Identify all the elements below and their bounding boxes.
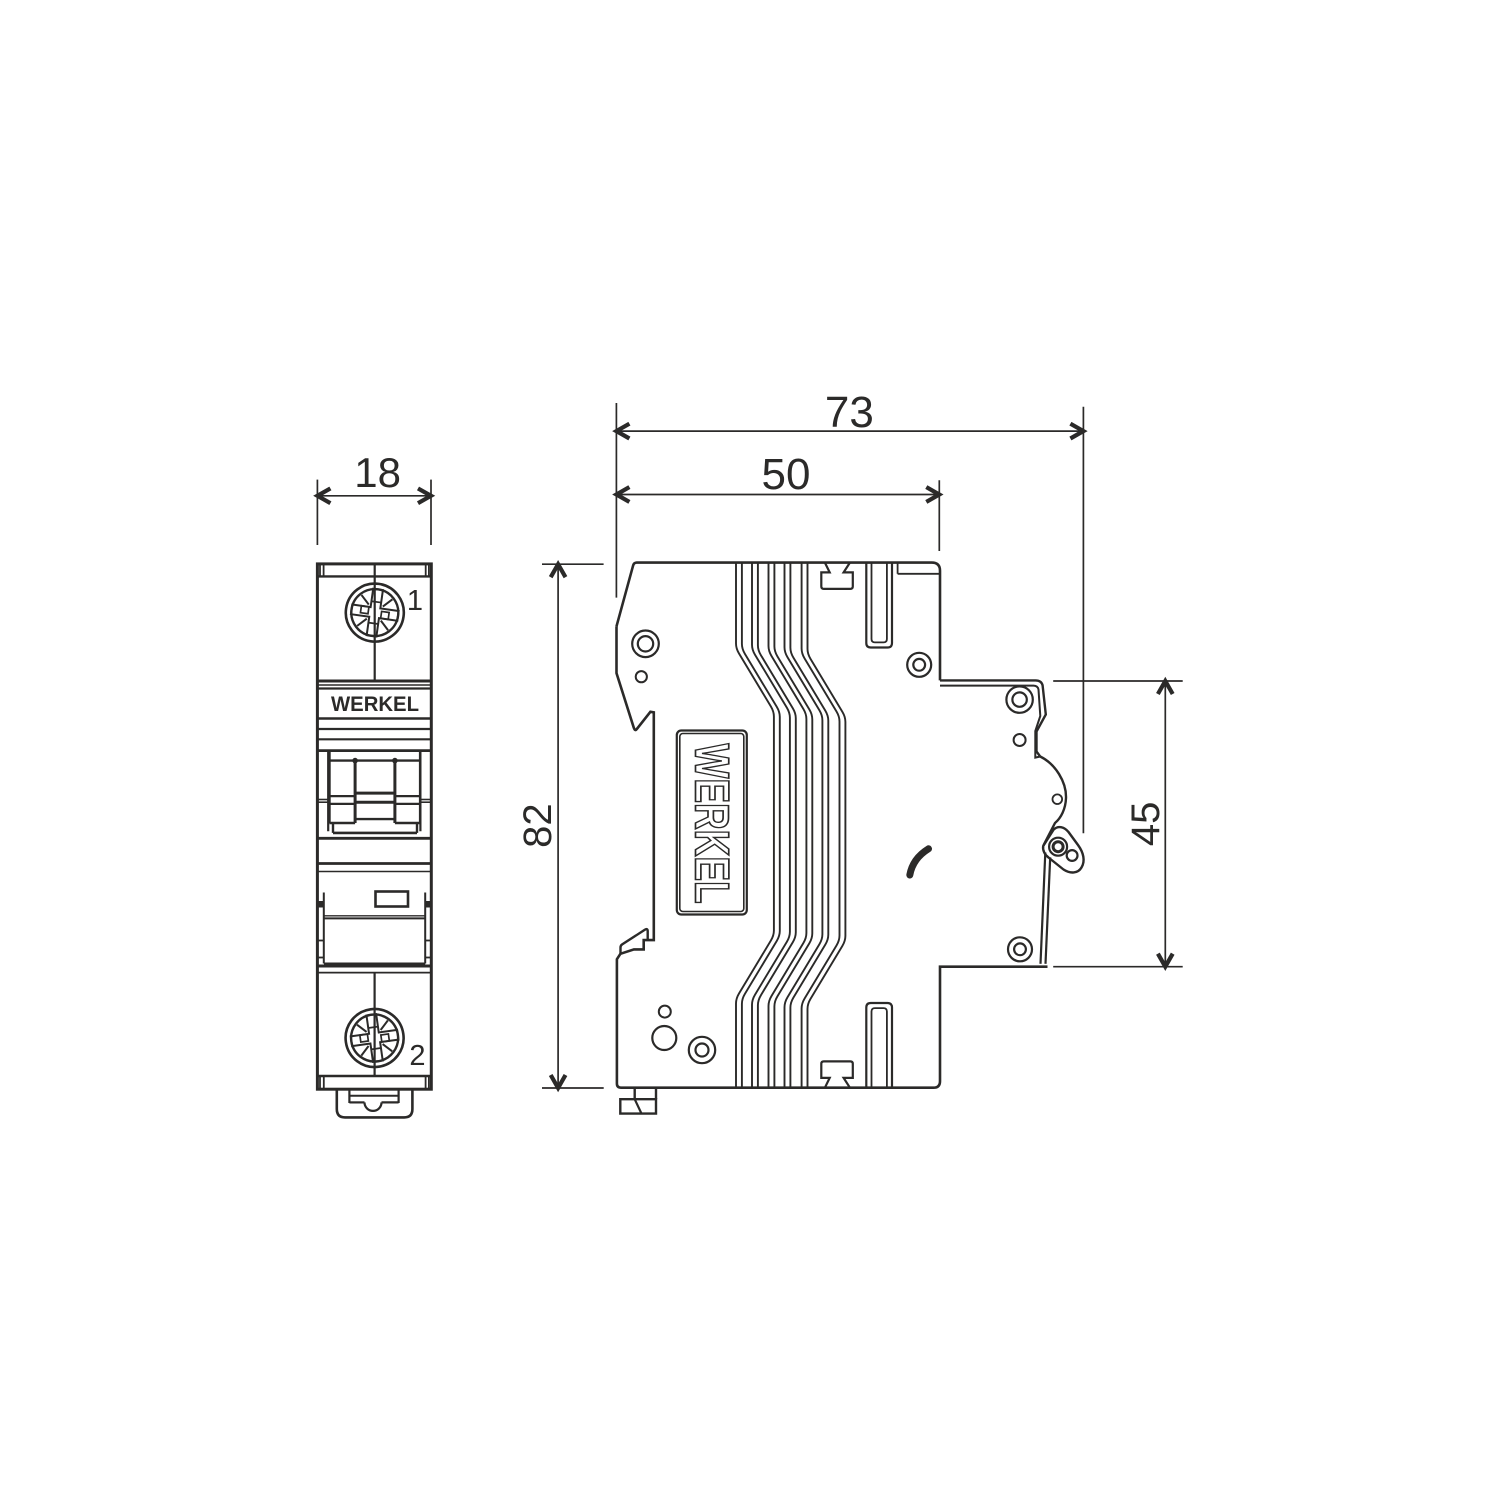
svg-text:WERKEL: WERKEL [331,692,419,716]
svg-text:18: 18 [354,449,401,496]
svg-text:2: 2 [409,1040,425,1072]
svg-text:50: 50 [762,450,811,499]
svg-text:45: 45 [1124,802,1168,847]
svg-text:WERKEL: WERKEL [685,744,738,904]
svg-text:1: 1 [407,585,423,617]
svg-text:82: 82 [516,803,560,848]
svg-text:73: 73 [825,388,874,437]
